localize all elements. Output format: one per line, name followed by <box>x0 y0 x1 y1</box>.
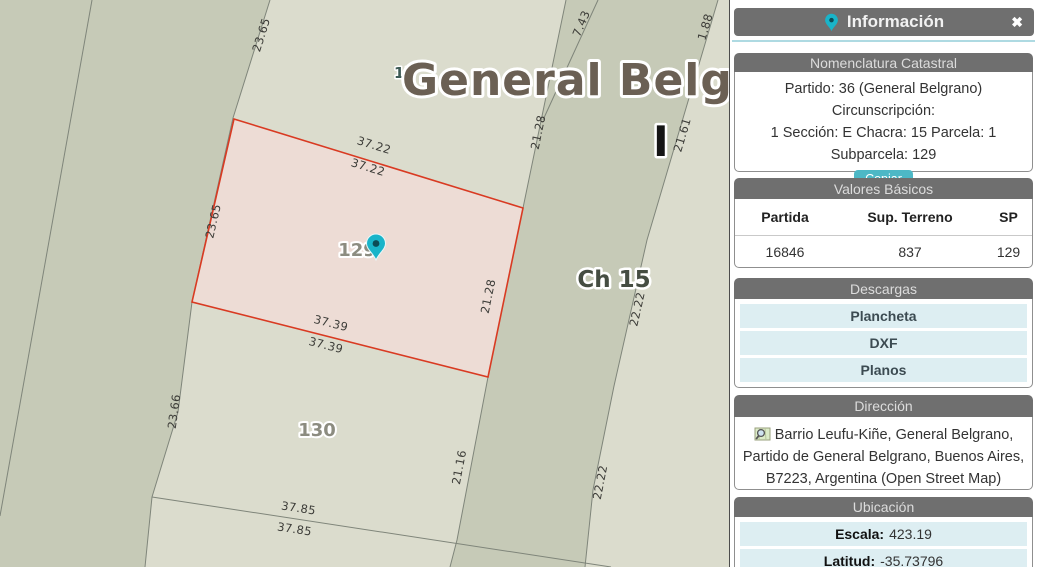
column-header: Partida <box>735 209 835 225</box>
table-row: 16846 837 129 <box>735 236 1032 268</box>
nomenclatura-line: Subparcela: 129 <box>735 144 1032 166</box>
info-panel: Información ✖ Nomenclatura Catastral Par… <box>729 0 1037 567</box>
info-pin-icon <box>824 12 839 33</box>
direccion-line: Barrio Leufu-Kiñe, General Belgrano, <box>775 427 1014 443</box>
latitud-label: Latitud: <box>824 553 875 567</box>
escala-row: Escala: 423.19 <box>740 522 1027 546</box>
section-header-descargas: Descargas <box>734 278 1033 299</box>
valores-table: Partida Sup. Terreno SP 16846 837 129 <box>734 199 1033 268</box>
section-header-direccion: Dirección <box>734 395 1033 417</box>
section-header-nomenclatura: Nomenclatura Catastral <box>734 53 1033 72</box>
sp-value: 129 <box>985 244 1032 260</box>
close-icon[interactable]: ✖ <box>1011 14 1023 30</box>
panel-title: Información <box>847 12 944 32</box>
section-header-ubicacion: Ubicación <box>734 497 1033 517</box>
section-marker-label: I <box>653 117 669 166</box>
latitud-value: -35.73796 <box>880 553 943 567</box>
chacra-label: Ch 15 <box>577 267 650 293</box>
parcel-130-label: 130 <box>298 420 336 441</box>
latitud-row: Latitud: -35.73796 <box>740 549 1027 567</box>
download-plancheta-link[interactable]: Plancheta <box>850 308 916 324</box>
descargas-content: Plancheta DXF Planos <box>734 299 1033 388</box>
valores-header-row: Partida Sup. Terreno SP <box>735 199 1032 236</box>
ubicacion-content: Escala: 423.19 Latitud: -35.73796 <box>734 517 1033 567</box>
map-search-icon <box>754 427 771 441</box>
download-dxf-link[interactable]: DXF <box>870 335 898 351</box>
escala-label: Escala: <box>835 526 884 542</box>
escala-value: 423.19 <box>889 526 932 542</box>
panel-header[interactable]: Información ✖ <box>734 8 1034 36</box>
header-divider <box>732 40 1035 42</box>
cadastral-viewer: 7.43 1.88 23.65 21.61 37.22 37.22 21.28 … <box>0 0 1037 567</box>
section-header-valores: Valores Básicos <box>734 178 1033 199</box>
direccion-content: Barrio Leufu-Kiñe, General Belgrano, Par… <box>734 417 1033 490</box>
nomenclatura-content: Partido: 36 (General Belgrano) Circunscr… <box>734 72 1033 172</box>
superficie-value: 837 <box>835 244 985 260</box>
partida-value: 16846 <box>735 244 835 260</box>
direccion-line: Partido de General Belgrano, Buenos Aire… <box>735 446 1032 468</box>
nomenclatura-line: Partido: 36 (General Belgrano) Circunscr… <box>735 78 1032 122</box>
nomenclatura-line: 1 Sección: E Chacra: 15 Parcela: 1 <box>735 122 1032 144</box>
download-planos-link[interactable]: Planos <box>861 362 907 378</box>
column-header: Sup. Terreno <box>835 209 985 225</box>
direccion-line: B7223, Argentina (Open Street Map) <box>735 468 1032 490</box>
column-header: SP <box>985 209 1032 225</box>
